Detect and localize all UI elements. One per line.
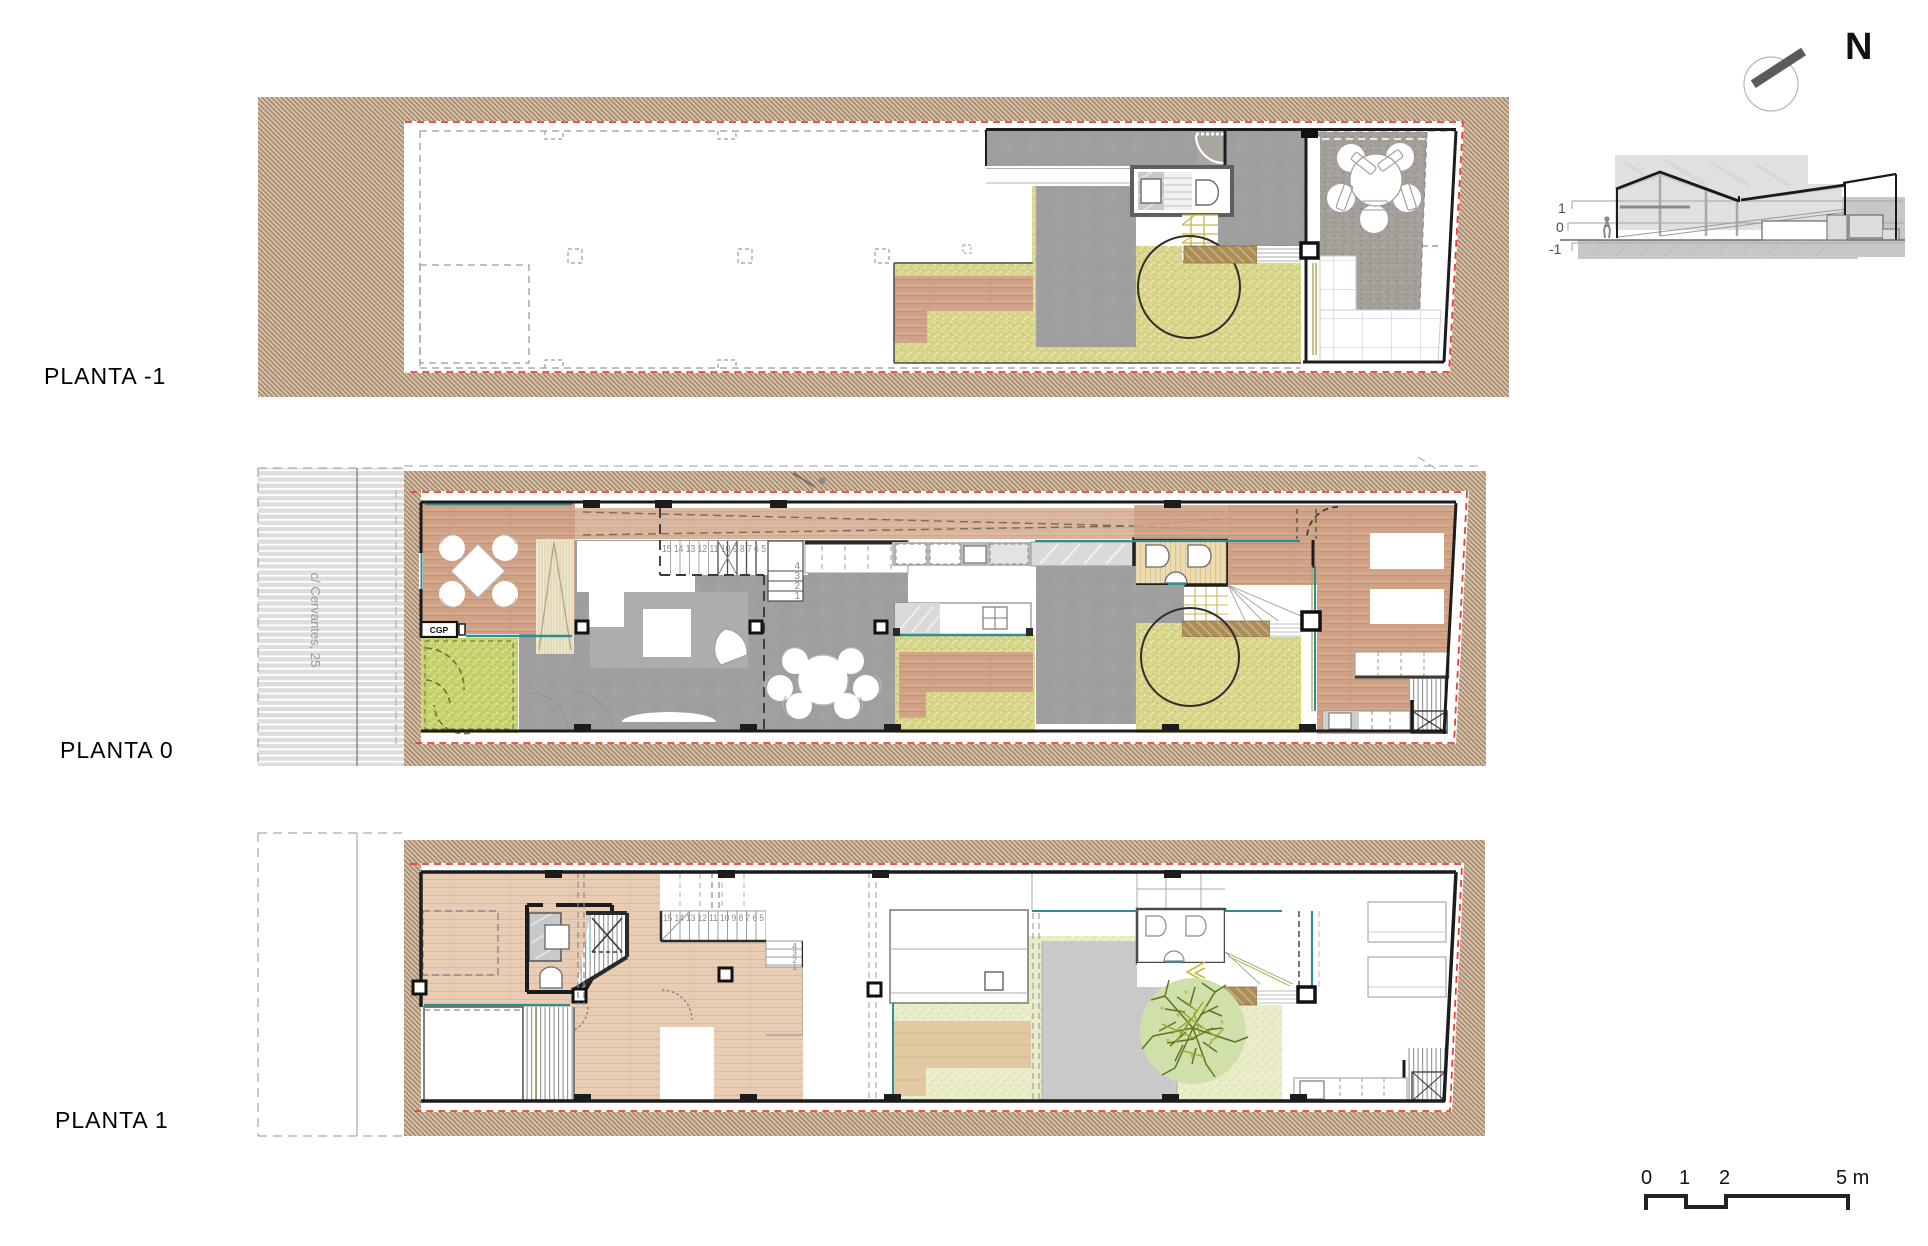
svg-text:15 14 13 12 11 10 9 8 7 6 5: 15 14 13 12 11 10 9 8 7 6 5	[663, 913, 764, 923]
svg-text:0: 0	[1556, 219, 1564, 235]
svg-text:15 14 13 12 11 10 9 8 7 6 5: 15 14 13 12 11 10 9 8 7 6 5	[662, 544, 766, 555]
svg-text:1: 1	[792, 962, 797, 972]
svg-text:0: 0	[1641, 1167, 1652, 1189]
svg-text:1: 1	[1558, 200, 1566, 216]
svg-text:-1: -1	[1549, 241, 1562, 257]
svg-text:N: N	[1845, 26, 1872, 68]
svg-text:PLANTA 0: PLANTA 0	[60, 737, 174, 763]
svg-text:c/ Cervantes, 25: c/ Cervantes, 25	[308, 573, 323, 668]
svg-text:1: 1	[1679, 1167, 1690, 1189]
svg-text:CGP: CGP	[430, 625, 449, 635]
svg-text:PLANTA 1: PLANTA 1	[55, 1107, 169, 1133]
svg-text:PLANTA -1: PLANTA -1	[44, 363, 166, 389]
svg-text:1: 1	[794, 591, 800, 602]
svg-text:2: 2	[1719, 1167, 1730, 1189]
svg-text:5 m: 5 m	[1836, 1167, 1869, 1189]
